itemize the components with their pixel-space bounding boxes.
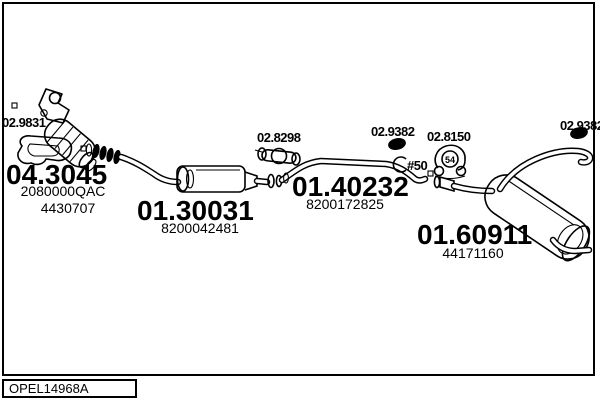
- part-code-clamp-centre[interactable]: 02.8298: [257, 130, 301, 145]
- part-code-gasket[interactable]: 02.9831: [2, 115, 46, 130]
- hanger-size: 54: [445, 155, 455, 165]
- clamp-front-size: 52: [393, 140, 402, 149]
- part-code-hanger[interactable]: 02.8150: [427, 129, 471, 144]
- drawing-code: OPEL14968A: [9, 381, 89, 396]
- drawing-code-box: OPEL14968A: [2, 379, 137, 398]
- diagram-drawing: 52 54 52 02.9831 04.3045: [0, 0, 600, 378]
- pipe-diameter-label: #50: [407, 158, 427, 173]
- part-code-clamp-front[interactable]: 02.9382: [371, 124, 415, 139]
- part-ref-catalyst-1: 2080000QAC: [21, 183, 106, 199]
- exhaust-diagram: 52 54 52 02.9831 04.3045: [0, 0, 600, 400]
- part-ref-centre-muffler: 8200042481: [161, 220, 239, 236]
- part-code-clamp-rear[interactable]: 02.9382: [560, 118, 600, 133]
- part-ref-centre-pipe: 8200172825: [306, 196, 384, 212]
- part-ref-catalyst-2: 4430707: [41, 200, 96, 216]
- part-ref-rear-muffler: 44171160: [442, 245, 503, 261]
